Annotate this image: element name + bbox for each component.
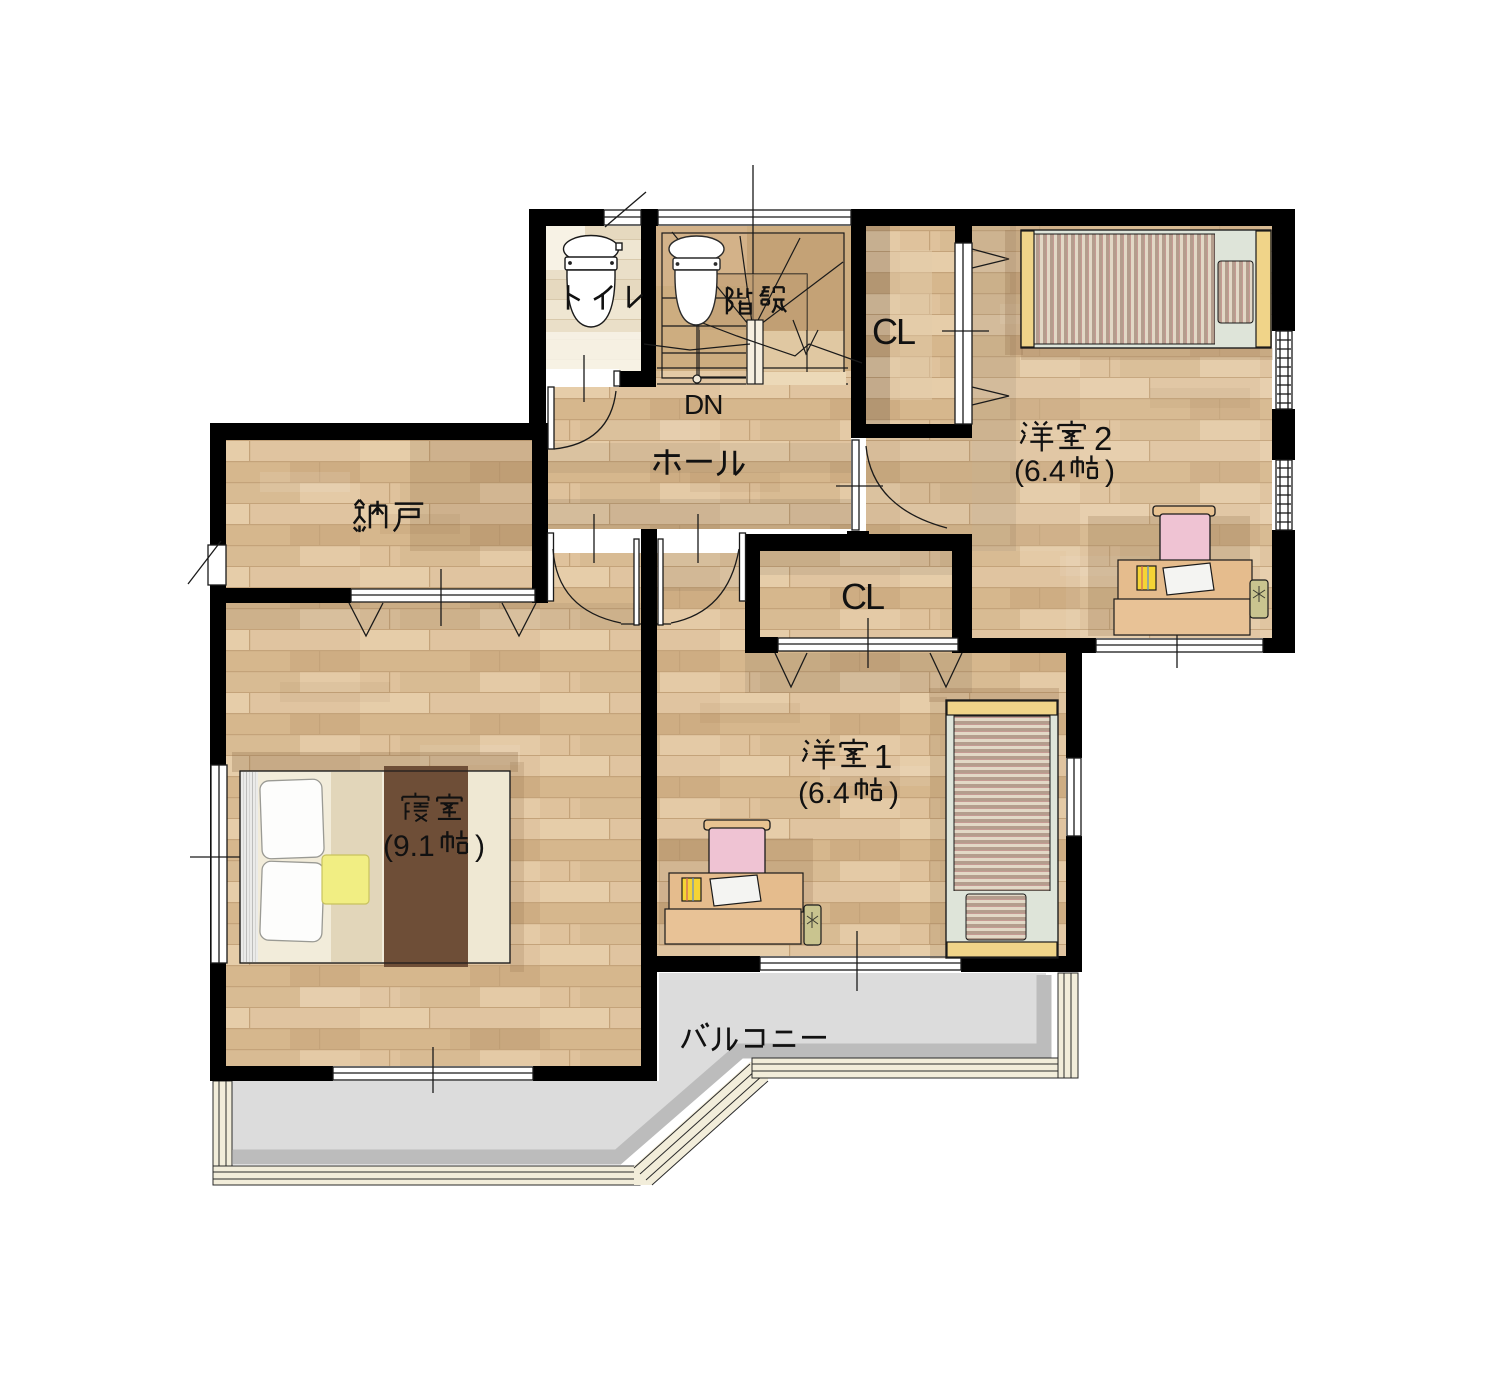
- svg-text:CL: CL: [872, 311, 915, 352]
- svg-text:): ): [1105, 455, 1115, 488]
- svg-text:DN: DN: [684, 389, 722, 420]
- svg-text:(9.1: (9.1: [383, 830, 435, 863]
- svg-text:(6.4: (6.4: [1014, 455, 1066, 488]
- svg-text:CL: CL: [841, 576, 884, 617]
- svg-text:): ): [889, 777, 899, 810]
- svg-text:2: 2: [1094, 420, 1112, 457]
- svg-text:(6.4: (6.4: [798, 777, 850, 810]
- svg-text:): ): [475, 830, 485, 863]
- svg-text:1: 1: [874, 738, 892, 775]
